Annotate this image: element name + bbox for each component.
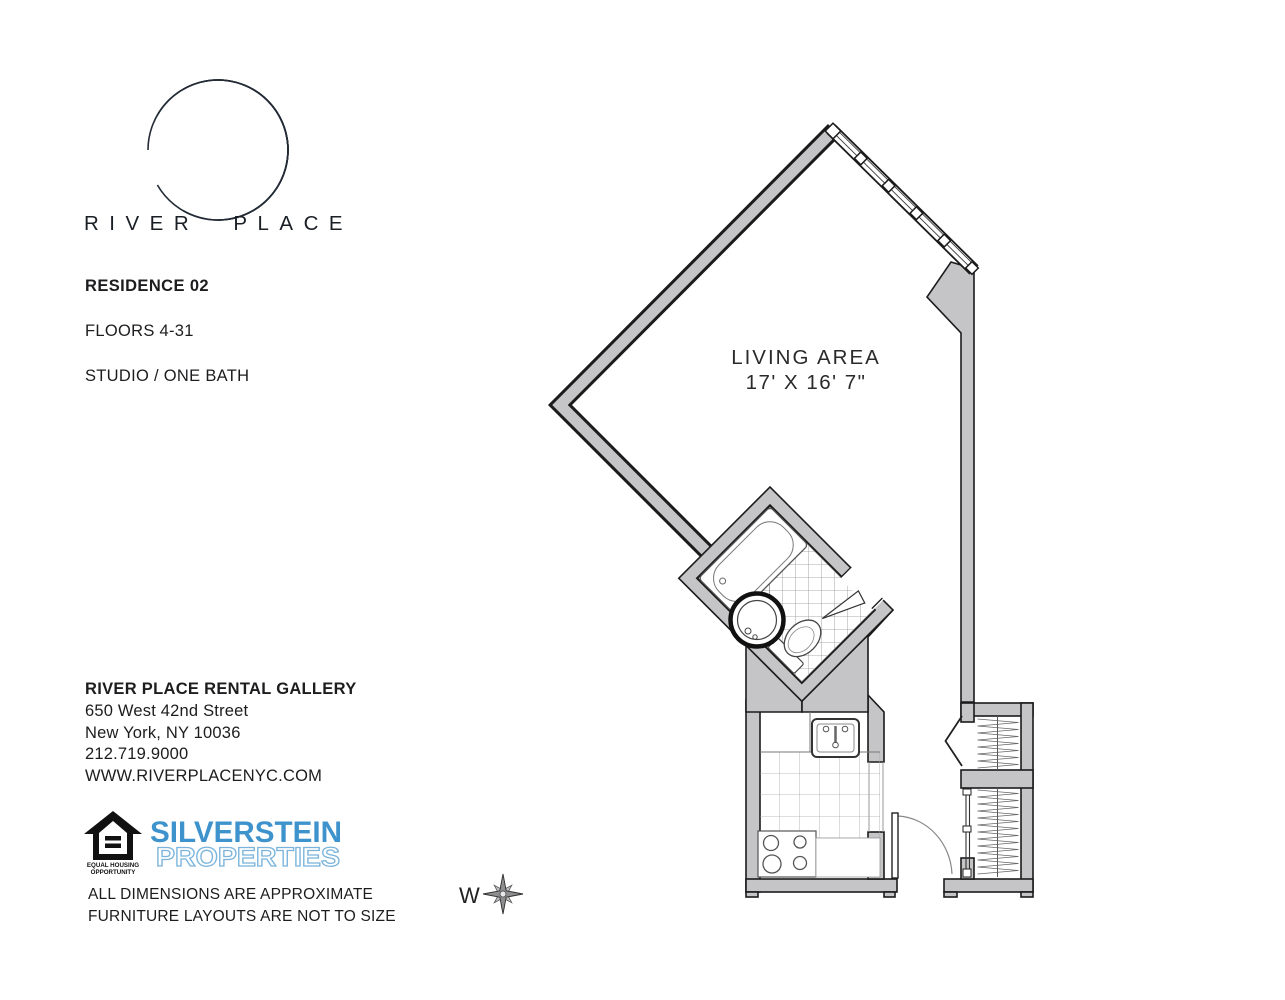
kitchen-sink	[812, 719, 859, 757]
closet-right-wall	[1021, 703, 1033, 892]
closets	[946, 716, 1019, 877]
residence-title: RESIDENCE 02	[85, 277, 209, 296]
disclaimer-line2: FURNITURE LAYOUTS ARE NOT TO SIZE	[88, 906, 396, 928]
living-room-walls	[560, 130, 834, 551]
river-place-logo-icon	[146, 78, 290, 222]
equal-housing-icon: EQUAL HOUSING OPPORTUNITY	[84, 810, 142, 876]
compass-rose-icon	[483, 874, 523, 914]
living-area-dimensions: 17' X 16' 7"	[746, 371, 867, 394]
entry-door	[892, 813, 952, 878]
east-wall	[927, 262, 974, 702]
brand-title: RIVER PLACE	[84, 212, 353, 236]
entry-door-leaf	[892, 813, 898, 878]
unit-type-label: STUDIO / ONE BATH	[85, 367, 249, 386]
entry-door-swing	[898, 816, 952, 874]
silverstein-line2: PROPERTIES	[156, 842, 340, 872]
disclaimer-block: ALL DIMENSIONS ARE APPROXIMATE FURNITURE…	[88, 884, 396, 928]
closet-divider-wall	[961, 770, 1033, 788]
website-url: WWW.RIVERPLACENYC.COM	[85, 766, 357, 788]
compass-direction-label: W	[459, 883, 480, 908]
floors-label: FLOORS 4-31	[85, 322, 194, 341]
window-wall	[825, 123, 978, 274]
address-line2: New York, NY 10036	[85, 723, 357, 745]
kitchen-tile-floor	[760, 752, 880, 838]
eho-line2: OPPORTUNITY	[91, 869, 137, 876]
eho-line1: EQUAL HOUSING	[87, 862, 139, 869]
bathroom-sink	[731, 594, 784, 647]
phone-number: 212.719.9000	[85, 744, 357, 766]
stove	[758, 831, 816, 877]
compass: W	[459, 874, 523, 914]
kitchen-bottom-wall	[746, 879, 897, 892]
disclaimer-line1: ALL DIMENSIONS ARE APPROXIMATE	[88, 884, 396, 906]
kitchen-counter	[816, 838, 880, 877]
living-area-label: LIVING AREA	[731, 346, 881, 369]
silverstein-logo: SILVERSTEIN PROPERTIES	[148, 816, 348, 874]
gallery-title: RIVER PLACE RENTAL GALLERY	[85, 679, 357, 701]
address-line1: 650 West 42nd Street	[85, 701, 357, 723]
closet-jamb-top	[961, 703, 974, 722]
kitchen	[758, 712, 883, 877]
closet-bifold-door	[946, 716, 963, 766]
closet-bottom-wall	[944, 879, 1033, 892]
contact-block: RIVER PLACE RENTAL GALLERY 650 West 42nd…	[85, 679, 357, 788]
